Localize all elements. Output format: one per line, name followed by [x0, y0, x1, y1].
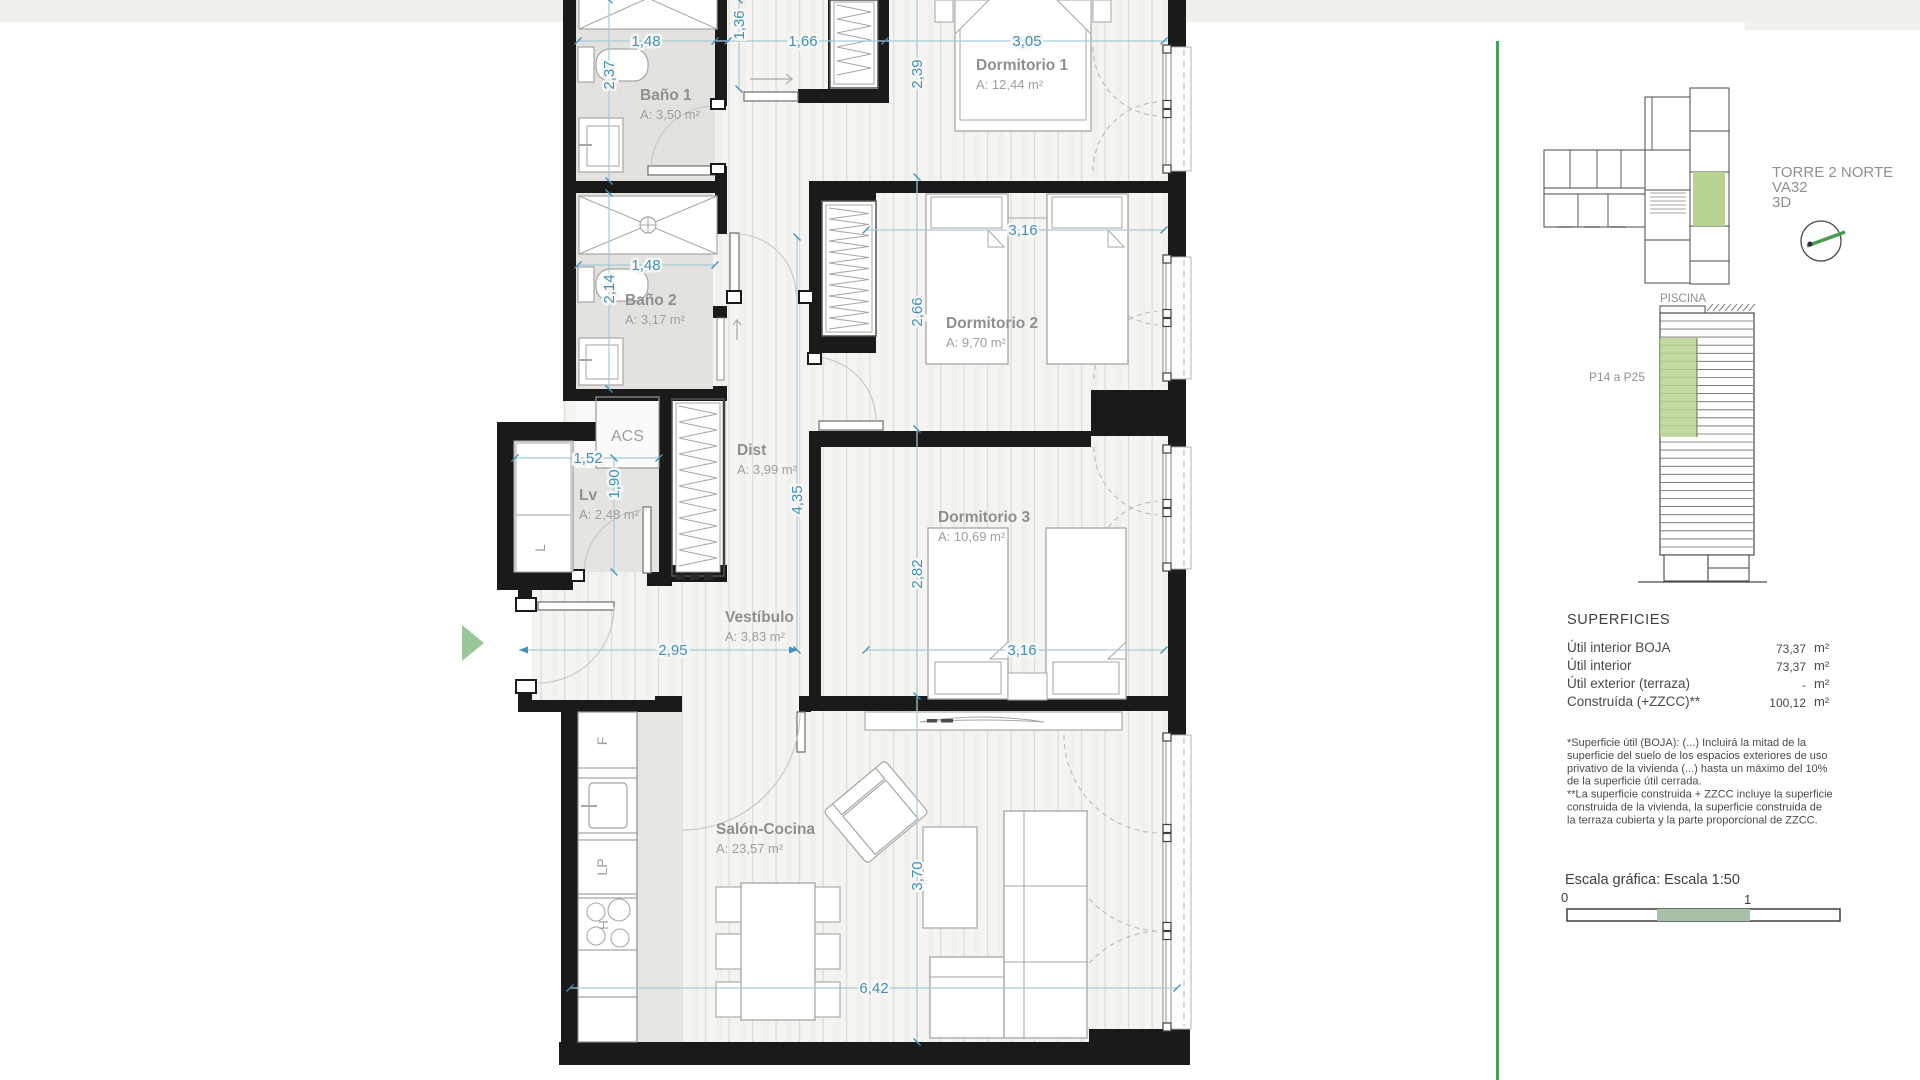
svg-text:A: 9,70 m²: A: 9,70 m² — [946, 335, 1007, 350]
svg-text:Útil interior: Útil interior — [1567, 658, 1632, 673]
svg-text:2,14: 2,14 — [601, 274, 618, 303]
svg-text:2,37: 2,37 — [601, 60, 618, 89]
svg-text:*Superficie útil (BOJA): (...): *Superficie útil (BOJA): (...) Incluirá … — [1567, 737, 1807, 749]
svg-text:A: 12,44 m²: A: 12,44 m² — [976, 77, 1044, 92]
svg-text:1,90: 1,90 — [606, 469, 623, 498]
svg-text:m²: m² — [1814, 676, 1830, 691]
svg-text:A: 3,17 m²: A: 3,17 m² — [625, 312, 686, 327]
svg-text:-: - — [1802, 678, 1806, 692]
svg-text:Baño 2: Baño 2 — [625, 292, 677, 309]
svg-text:ACS: ACS — [611, 428, 644, 445]
svg-text:3,05: 3,05 — [1012, 33, 1041, 50]
svg-text:100,12: 100,12 — [1769, 696, 1806, 710]
svg-text:construida de la vivienda, la: construida de la vivienda, la superficie… — [1567, 802, 1822, 814]
svg-text:**La superficie construida + Z: **La superficie construida + ZZCC incluy… — [1567, 789, 1833, 801]
svg-text:H: H — [596, 920, 611, 929]
svg-text:m²: m² — [1814, 694, 1830, 709]
svg-text:1,36: 1,36 — [731, 10, 748, 39]
svg-text:A: 2,48 m²: A: 2,48 m² — [579, 507, 640, 522]
svg-text:2,39: 2,39 — [909, 59, 926, 88]
svg-text:m²: m² — [1814, 658, 1830, 673]
svg-text:P14 a P25: P14 a P25 — [1589, 370, 1645, 384]
svg-text:1,48: 1,48 — [631, 257, 660, 274]
svg-text:2,95: 2,95 — [658, 642, 687, 659]
svg-text:Baño 1: Baño 1 — [640, 87, 692, 104]
svg-text:4,35: 4,35 — [789, 485, 806, 514]
svg-text:A: 10,69 m²: A: 10,69 m² — [938, 529, 1006, 544]
svg-text:Lv: Lv — [579, 487, 597, 504]
svg-text:L: L — [532, 544, 548, 552]
svg-text:1,52: 1,52 — [573, 450, 602, 467]
svg-text:A: 3,99 m²: A: 3,99 m² — [737, 462, 798, 477]
svg-text:de la superficie útil cerrada.: de la superficie útil cerrada. — [1567, 776, 1702, 788]
svg-text:la terraza cubierta y la parte: la terraza cubierta y la parte proporcio… — [1567, 814, 1818, 826]
svg-text:Dormitorio 2: Dormitorio 2 — [946, 315, 1038, 332]
svg-text:Dist: Dist — [737, 442, 766, 459]
svg-text:1,66: 1,66 — [788, 33, 817, 50]
svg-text:A: 3,83 m²: A: 3,83 m² — [725, 629, 786, 644]
svg-text:2,66: 2,66 — [909, 297, 926, 326]
svg-text:PISCINA: PISCINA — [1660, 293, 1706, 305]
svg-text:1: 1 — [1744, 892, 1751, 907]
svg-text:superficie del suelo de los es: superficie del suelo de los espacios ext… — [1567, 750, 1827, 762]
svg-text:A: 3,50 m²: A: 3,50 m² — [640, 107, 701, 122]
svg-text:3,16: 3,16 — [1007, 642, 1036, 659]
svg-text:privativo de la vivienda (...): privativo de la vivienda (...) hasta un … — [1567, 763, 1828, 775]
svg-text:Útil exterior (terraza): Útil exterior (terraza) — [1567, 676, 1690, 691]
svg-text:3,16: 3,16 — [1008, 222, 1037, 239]
svg-text:m²: m² — [1814, 640, 1830, 655]
svg-text:F: F — [594, 737, 610, 746]
svg-text:2,82: 2,82 — [909, 559, 926, 588]
svg-text:0: 0 — [1561, 890, 1568, 905]
svg-text:A: 23,57 m²: A: 23,57 m² — [716, 841, 784, 856]
svg-text:Construída (+ZZCC)**: Construída (+ZZCC)** — [1567, 694, 1701, 709]
svg-text:1,48: 1,48 — [631, 33, 660, 50]
svg-text:Salón-Cocina: Salón-Cocina — [716, 821, 815, 838]
svg-text:6,42: 6,42 — [859, 980, 888, 997]
svg-text:3,70: 3,70 — [909, 861, 926, 890]
svg-text:73,37: 73,37 — [1776, 660, 1806, 674]
svg-text:73,37: 73,37 — [1776, 642, 1806, 656]
svg-text:Útil interior BOJA: Útil interior BOJA — [1567, 640, 1671, 655]
svg-text:3D: 3D — [1772, 194, 1791, 211]
svg-text:SUPERFICIES: SUPERFICIES — [1567, 612, 1670, 628]
svg-text:Dormitorio 1: Dormitorio 1 — [976, 57, 1069, 74]
svg-text:LP: LP — [594, 858, 610, 875]
svg-text:Escala gráfica: Escala 1:50: Escala gráfica: Escala 1:50 — [1565, 872, 1740, 888]
svg-text:Dormitorio 3: Dormitorio 3 — [938, 509, 1031, 526]
svg-text:Vestíbulo: Vestíbulo — [725, 609, 794, 626]
